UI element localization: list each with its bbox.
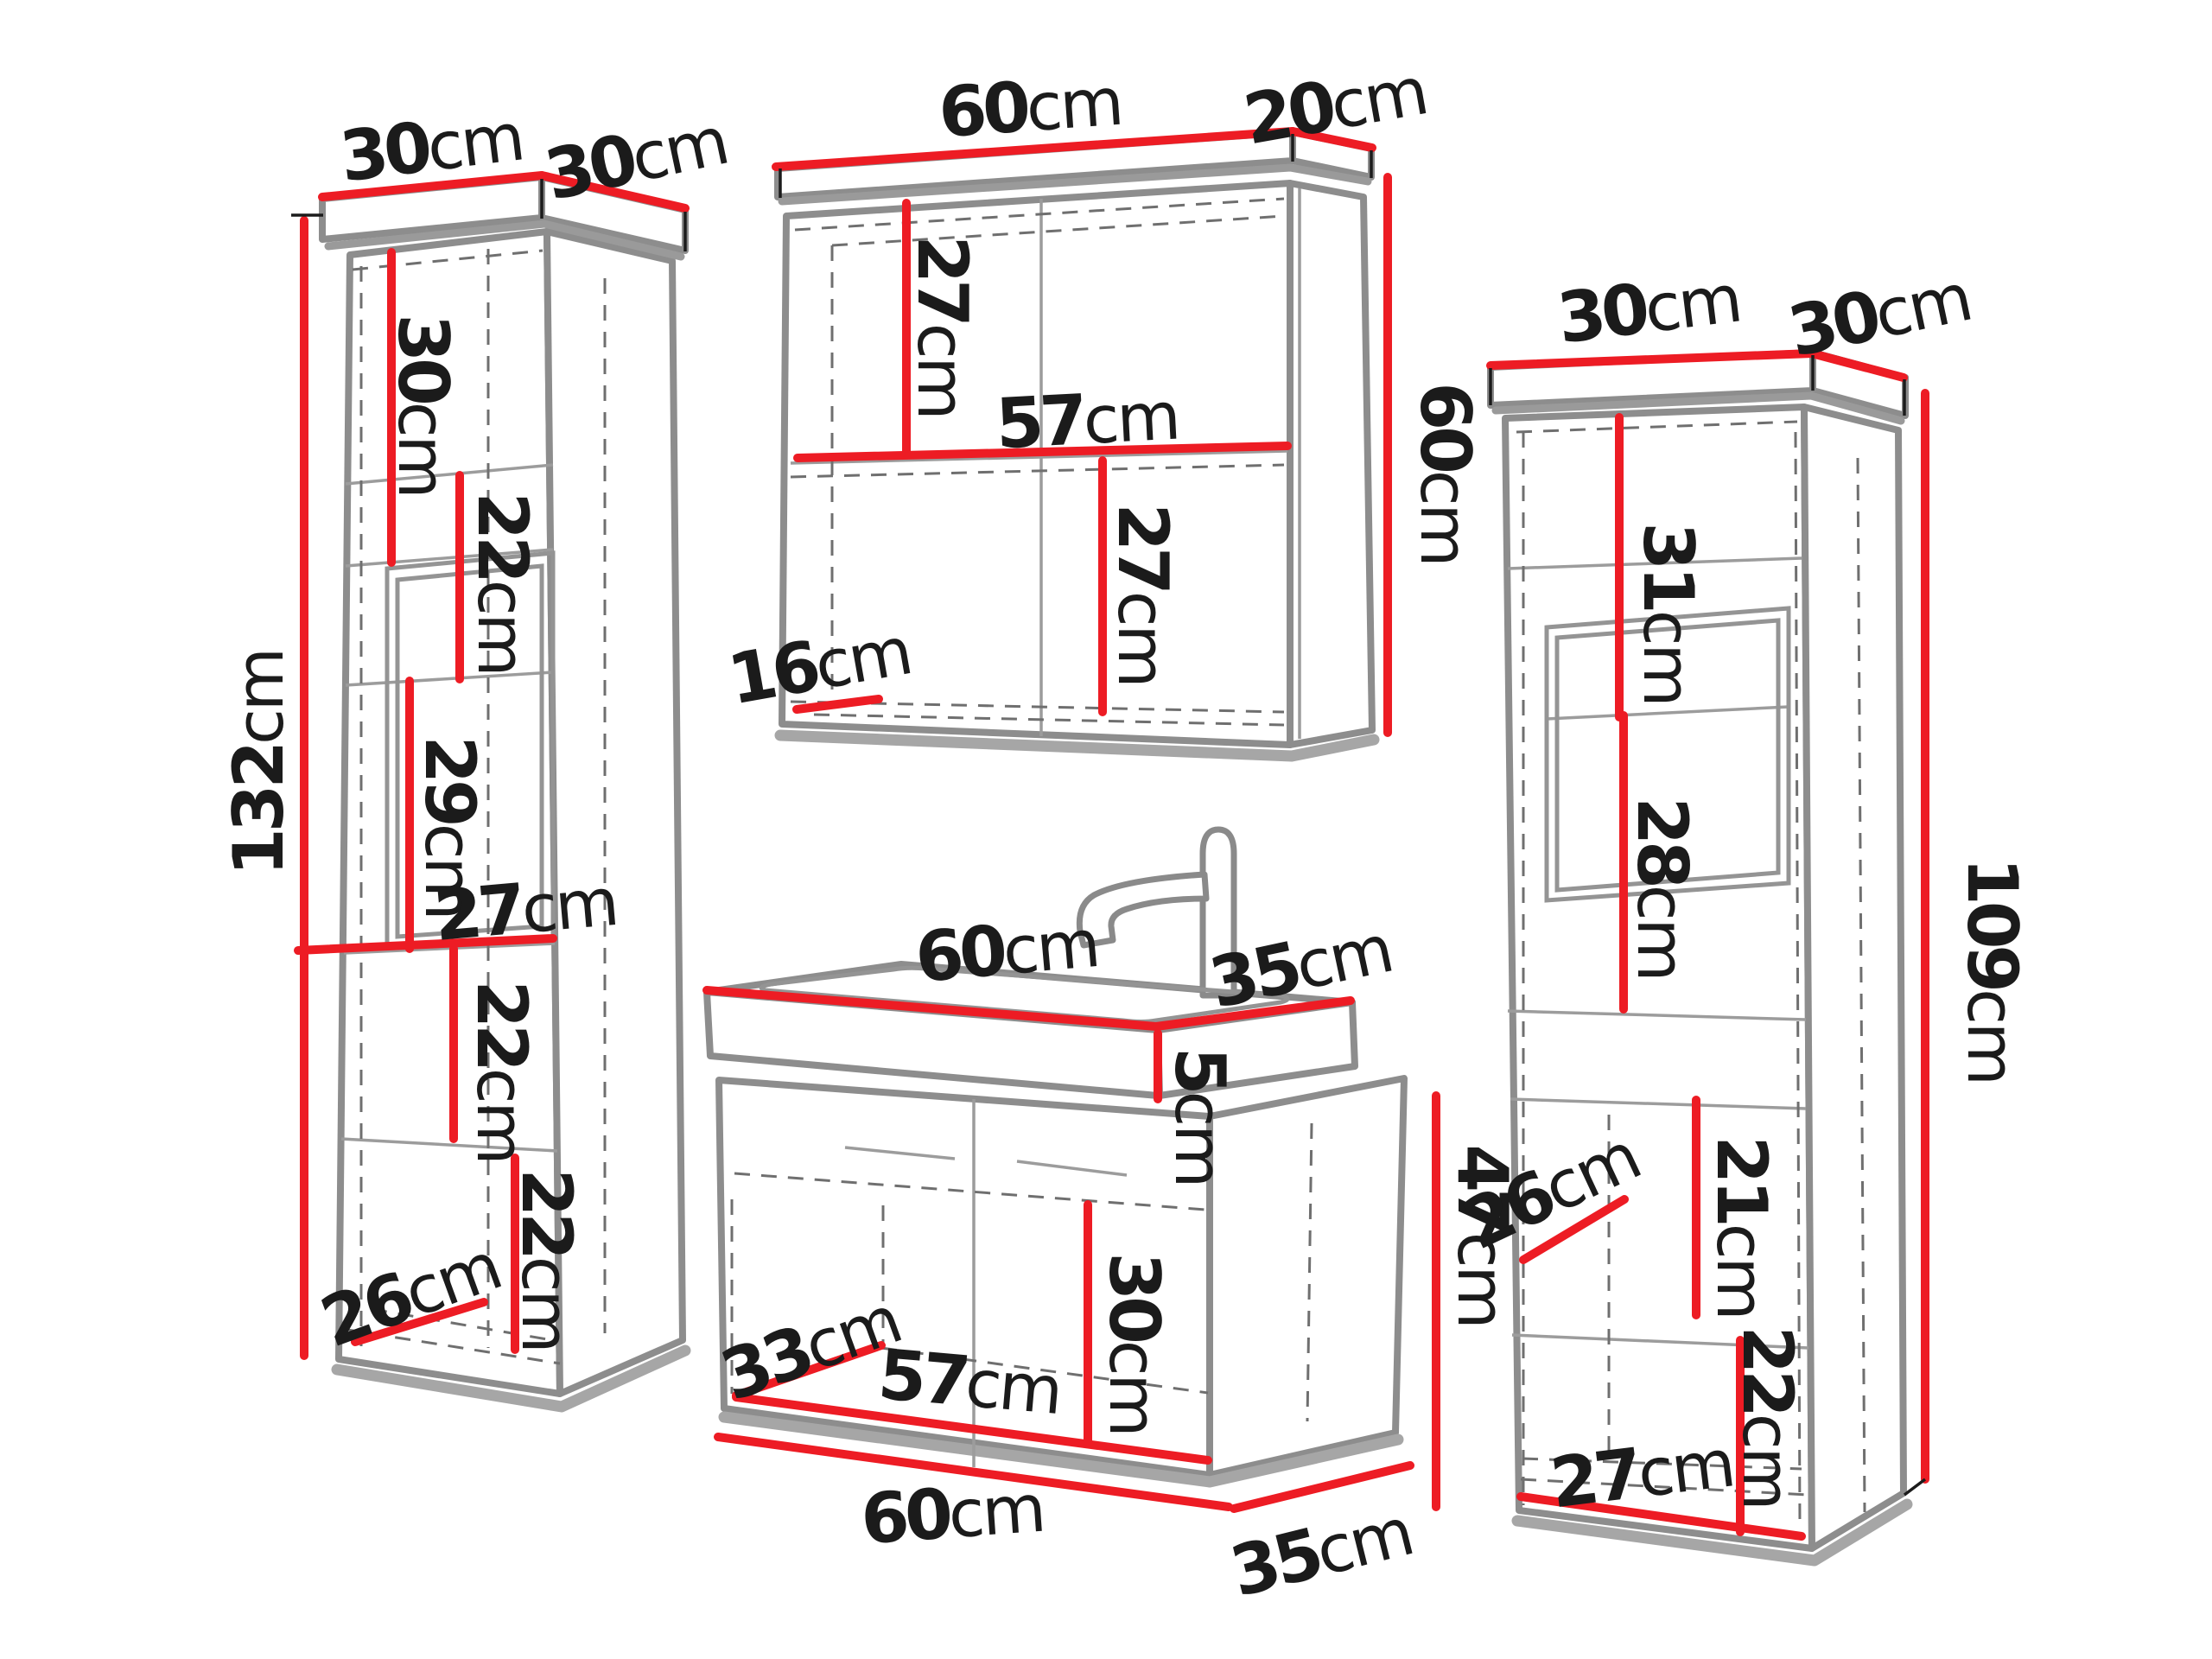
dim-label-height: 60cm xyxy=(1405,382,1485,564)
dim-label-interior-height: 30cm xyxy=(1094,1252,1174,1434)
dim-label-top-width: 60cm xyxy=(912,902,1101,998)
dim-label-top-depth: 30cm xyxy=(1782,256,1977,372)
cabinet-outline xyxy=(322,177,685,1407)
dim-label-height: 109cm xyxy=(1952,857,2032,1084)
furniture-dimensions-diagram: 30cm 30cm 132cm 30cm 22cm 29cm 27cm 22cm… xyxy=(0,0,2212,1659)
dim-label-basin-height: 5cm xyxy=(1160,1047,1240,1186)
tall-cabinet-right: 30cm 30cm 31cm 28cm 109cm 21cm 26cm 22cm… xyxy=(1451,256,2032,1560)
tall-cabinet-left: 30cm 30cm 132cm 30cm 22cm 29cm 27cm 22cm… xyxy=(219,95,734,1407)
dim-label-top-depth: 20cm xyxy=(1238,49,1432,160)
sink-vanity-cabinet: 60cm 35cm 5cm 47cm 30cm 33cm 57cm 60cm 3… xyxy=(707,829,1522,1612)
dim-label-interior-width: 27cm xyxy=(431,861,620,957)
dim-label-lower-interior: 27cm xyxy=(1103,503,1183,685)
dim-label-shelf-section: 21cm xyxy=(1701,1135,1782,1318)
dim-label-upper-interior: 27cm xyxy=(902,235,982,417)
dim-label-bottom-section: 22cm xyxy=(1727,1325,1808,1508)
dim-label-bottom-depth: 35cm xyxy=(1223,1491,1419,1612)
dim-label-niche-lower: 28cm xyxy=(1622,797,1702,979)
dim-label-upper-section: 30cm xyxy=(383,314,463,496)
dim-label-top-width: 60cm xyxy=(936,60,1123,154)
dim-label-shelf-section: 22cm xyxy=(461,980,542,1162)
dim-label-niche-height: 31cm xyxy=(1628,522,1708,704)
dim-label-top-width: 30cm xyxy=(1553,257,1744,359)
dim-label-top-depth: 30cm xyxy=(538,99,734,216)
dim-label-interior-width: 57cm xyxy=(994,375,1180,465)
dim-label-niche-upper: 22cm xyxy=(462,492,543,674)
dim-label-bottom-width: 60cm xyxy=(858,1467,1046,1560)
dim-label-bottom-section: 22cm xyxy=(506,1168,587,1351)
dim-label-height: 132cm xyxy=(219,650,299,876)
wall-cabinet-top: 60cm 20cm 27cm 57cm 27cm 16cm 60cm xyxy=(722,49,1485,756)
